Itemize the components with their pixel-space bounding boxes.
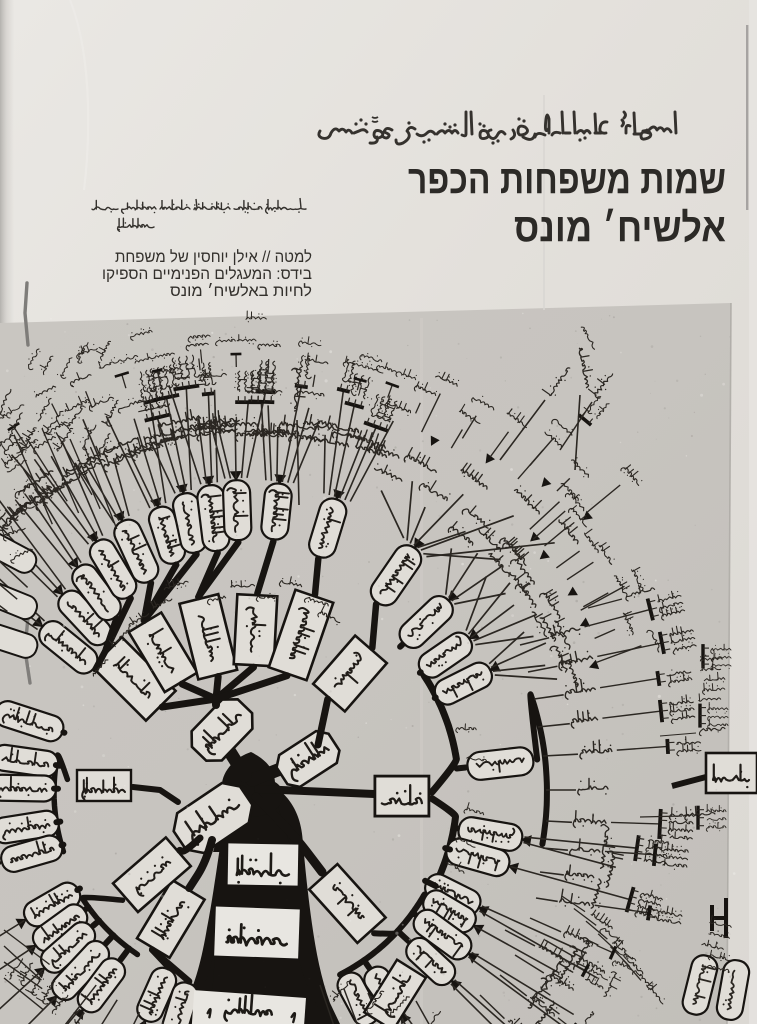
svg-text:אלשיח׳ מונס: אלשיח׳ מונס xyxy=(514,206,726,250)
svg-text:לחיות באלשיח׳ מונס: לחיות באלשיח׳ מונס xyxy=(170,282,312,300)
svg-text:שמות משפחות הכפר: שמות משפחות הכפר xyxy=(408,158,726,202)
svg-text:בידס: המעגלים הפנימיים הספיקו: בידס: המעגלים הפנימיים הספיקו xyxy=(102,265,312,283)
svg-text:למטה // אילן יוחסין של משפחת: למטה // אילן יוחסין של משפחת xyxy=(115,248,312,266)
